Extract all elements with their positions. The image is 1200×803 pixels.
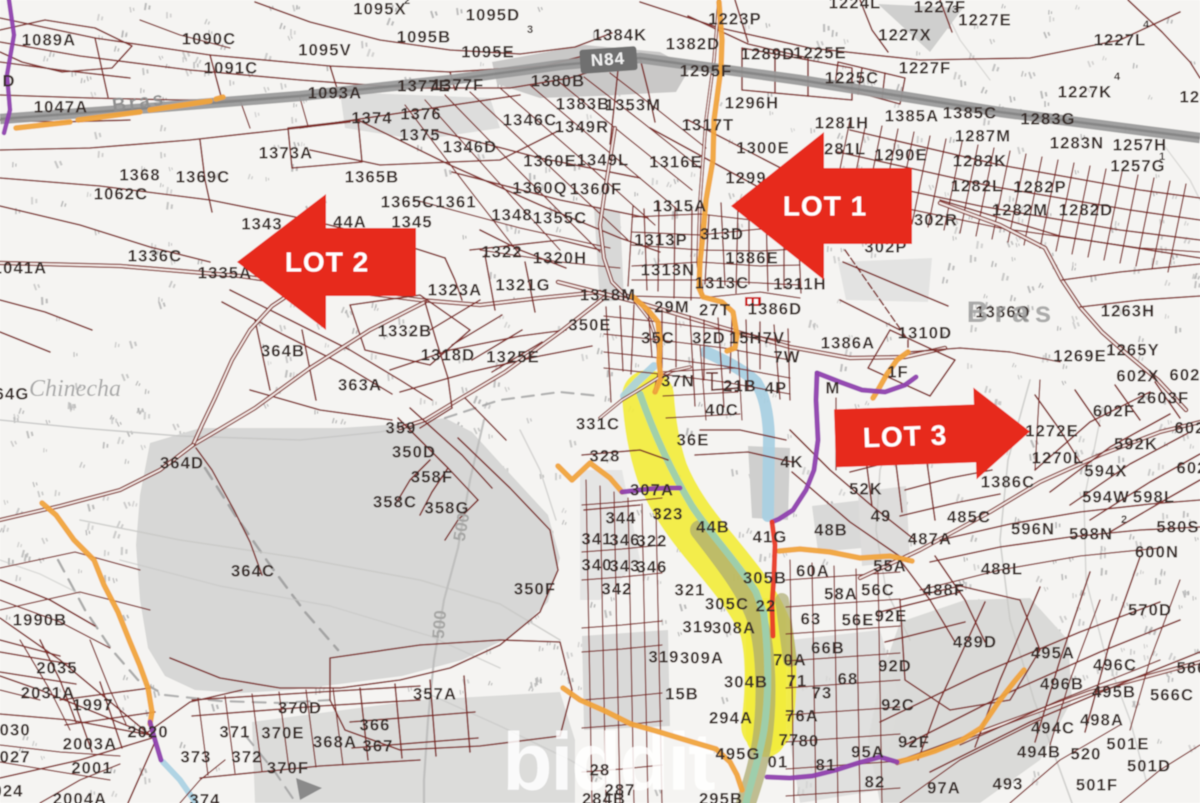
svg-text:364C: 364C [231,562,275,581]
svg-text:1318M: 1318M [580,286,636,305]
svg-text:97A: 97A [927,779,961,798]
svg-text:364D: 364D [160,454,204,473]
svg-text:1: 1 [1159,151,1165,163]
svg-text:LOT 3: LOT 3 [862,419,947,453]
svg-text:60A: 60A [796,562,830,581]
svg-text:40C: 40C [705,401,739,420]
svg-text:1320H: 1320H [533,249,587,268]
svg-text:52K: 52K [849,480,883,499]
svg-text:1318D: 1318D [421,346,475,365]
svg-text:64G: 64G [0,385,29,404]
svg-text:1361: 1361 [435,193,476,212]
svg-text:1265Y: 1265Y [1106,341,1159,360]
svg-text:1225E: 1225E [793,44,846,63]
svg-text:1386E: 1386E [725,249,778,268]
svg-text:71: 71 [787,672,808,691]
svg-text:366: 366 [360,716,391,735]
svg-text:323: 323 [653,505,684,524]
svg-text:357A: 357A [413,685,457,704]
svg-text:370E: 370E [261,724,304,743]
svg-text:1062C: 1062C [94,185,148,204]
svg-text:1990B: 1990B [13,611,67,630]
svg-text:1270L: 1270L [1032,449,1085,468]
svg-text:1386C: 1386C [981,473,1035,492]
svg-text:1384K: 1384K [593,26,647,45]
svg-text:592K: 592K [1114,435,1158,454]
svg-text:1355C: 1355C [533,209,587,228]
svg-text:2: 2 [404,0,410,7]
svg-text:41G: 41G [753,528,788,547]
svg-text:341: 341 [582,530,613,549]
svg-text:1386A: 1386A [821,334,875,353]
svg-text:1336C: 1336C [128,247,182,266]
svg-text:1227F: 1227F [899,59,952,78]
svg-text:2003A: 2003A [63,735,117,754]
svg-text:371: 371 [220,723,251,742]
svg-text:368A: 368A [313,733,357,752]
svg-text:496B: 496B [1040,675,1084,694]
svg-text:602: 602 [1175,419,1200,438]
svg-text:1095D: 1095D [466,6,520,25]
svg-text:1349L: 1349L [577,151,630,170]
svg-text:2001: 2001 [71,759,112,778]
svg-text:44B: 44B [696,518,730,537]
svg-text:1300E: 1300E [736,139,789,158]
svg-text:1282D: 1282D [1059,201,1113,220]
svg-text:4: 4 [1143,19,1150,31]
svg-text:1095E: 1095E [461,43,514,62]
svg-text:1332B: 1332B [378,322,432,341]
svg-text:3: 3 [527,24,533,36]
svg-text:322: 322 [637,532,668,551]
svg-text:1227F: 1227F [914,0,967,17]
svg-text:68: 68 [838,670,859,689]
svg-text:1310D: 1310D [898,324,952,343]
svg-text:370D: 370D [278,699,322,718]
svg-text:1F: 1F [887,363,909,382]
svg-text:501E: 501E [1106,735,1149,754]
svg-text:82: 82 [865,773,886,792]
svg-text:1090C: 1090C [182,30,236,49]
svg-text:1289D: 1289D [741,45,795,64]
svg-text:340: 340 [582,556,613,575]
svg-text:1385C: 1385C [943,104,997,123]
svg-text:346: 346 [637,558,668,577]
svg-text:1360F: 1360F [570,180,623,199]
svg-text:32D: 32D [692,329,726,348]
svg-text:3: 3 [952,4,958,16]
svg-text:28: 28 [590,761,611,780]
svg-text:1282K: 1282K [953,152,1007,171]
svg-text:494C: 494C [1031,719,1075,738]
svg-text:92C: 92C [881,696,915,715]
svg-text:570D: 570D [1128,601,1172,620]
svg-text:Chinecha: Chinecha [29,376,121,402]
svg-text:D: D [2,72,15,91]
svg-text:363A: 363A [338,376,382,395]
svg-text:370F: 370F [267,759,309,778]
svg-text:500: 500 [429,610,450,640]
svg-text:76A: 76A [785,707,819,726]
svg-text:27T: 27T [699,301,731,320]
svg-text:344: 344 [606,509,637,528]
svg-text:2027: 2027 [0,748,31,767]
svg-text:22: 22 [756,597,777,616]
svg-text:1282P: 1282P [1013,178,1066,197]
svg-text:372: 372 [232,748,263,767]
svg-text:70A: 70A [773,651,807,670]
svg-text:350D: 350D [392,443,436,462]
svg-text:1369C: 1369C [176,168,230,187]
svg-text:LOT 2: LOT 2 [285,247,369,278]
svg-text:1282M: 1282M [992,201,1048,220]
svg-text:1382D: 1382D [666,35,720,54]
svg-text:1095X: 1095X [353,0,406,19]
svg-text:319: 319 [649,648,680,667]
svg-text:73: 73 [812,684,833,703]
svg-text:1282L: 1282L [951,177,1004,196]
svg-text:1095V: 1095V [298,41,351,60]
svg-text:580S: 580S [1156,518,1199,537]
svg-text:1313P: 1313P [634,231,687,250]
svg-text:1313N: 1313N [641,261,695,280]
svg-text:1343: 1343 [241,215,282,234]
svg-text:1091C: 1091C [204,59,258,78]
svg-text:309A: 309A [680,649,724,668]
svg-text:331C: 331C [576,415,620,434]
svg-text:1281H: 1281H [815,114,869,133]
svg-text:1227X: 1227X [878,26,931,45]
svg-text:1317T: 1317T [682,116,735,135]
svg-text:1287M: 1287M [955,127,1011,146]
svg-text:01: 01 [768,753,789,772]
svg-text:1283N: 1283N [1050,134,1104,153]
svg-text:488F: 488F [923,581,965,600]
svg-text:2035: 2035 [36,659,77,678]
svg-text:284B: 284B [582,790,626,803]
svg-text:124: 124 [1180,88,1200,107]
svg-text:602: 602 [1170,366,1200,385]
svg-text:596N: 596N [1011,520,1055,539]
svg-text:1346D: 1346D [443,138,497,157]
svg-text:367: 367 [363,737,394,756]
svg-text:374: 374 [190,791,221,803]
svg-text:1997: 1997 [72,696,113,715]
svg-text:501F: 501F [1076,776,1118,795]
svg-text:77: 77 [779,731,800,750]
svg-text:29M: 29M [654,298,690,317]
svg-text:49: 49 [871,507,892,526]
svg-text:313D: 313D [700,225,744,244]
svg-text:494B: 494B [1017,743,1061,762]
svg-text:489D: 489D [953,633,997,652]
svg-text:1376: 1376 [400,105,441,124]
svg-text:63: 63 [801,610,822,629]
svg-text:N84: N84 [590,49,625,70]
svg-text:4P: 4P [765,379,788,398]
svg-text:15B: 15B [665,685,699,704]
svg-text:48B: 48B [814,521,848,540]
svg-text:495A: 495A [1031,644,1075,663]
svg-text:1348: 1348 [491,206,532,225]
svg-text:1360E: 1360E [523,152,576,171]
svg-text:95A: 95A [851,743,885,762]
svg-text:495B: 495B [1092,683,1136,702]
svg-text:1283G: 1283G [1020,110,1075,129]
svg-text:1377F: 1377F [432,76,485,95]
svg-text:1295F: 1295F [680,62,733,81]
svg-text:1263H: 1263H [1101,302,1155,321]
svg-text:1225C: 1225C [825,69,879,88]
svg-text:321: 321 [675,581,706,600]
svg-text:342: 342 [602,580,633,599]
svg-text:302R: 302R [914,211,958,230]
svg-text:496C: 496C [1093,656,1137,675]
svg-text:602X: 602X [1116,367,1159,386]
svg-text:1315A: 1315A [653,197,707,216]
svg-text:81: 81 [816,756,837,775]
svg-text:358C: 358C [373,493,417,512]
svg-text:Bras: Bras [967,296,1058,329]
svg-text:1373A: 1373A [259,144,313,163]
svg-text:1386D: 1386D [748,300,802,319]
svg-text:1311H: 1311H [773,275,826,294]
svg-text:1224L: 1224L [829,0,882,13]
svg-text:1383B: 1383B [556,95,610,114]
svg-text:294A: 294A [709,709,753,728]
svg-text:1272E: 1272E [1025,422,1078,441]
svg-text:024: 024 [0,782,24,801]
svg-text:358F: 358F [411,468,453,487]
svg-text:1325E: 1325E [486,348,539,367]
svg-text:1269E: 1269E [1053,347,1106,366]
svg-text:1365B: 1365B [345,168,399,187]
svg-text:92F: 92F [898,733,930,752]
svg-text:598L: 598L [1133,488,1175,507]
svg-text:488L: 488L [981,560,1023,579]
svg-text:58A: 58A [824,585,858,604]
svg-text:594W: 594W [1082,488,1130,507]
svg-text:1385A: 1385A [885,107,939,126]
svg-text:1089A: 1089A [22,31,76,50]
svg-text:295B: 295B [699,790,743,803]
svg-text:373: 373 [181,748,212,767]
svg-text:566: 566 [1177,659,1200,678]
svg-text:1047A: 1047A [34,98,88,117]
svg-text:92E: 92E [875,607,908,626]
svg-text:56E: 56E [842,611,875,630]
svg-text:M: M [826,379,841,398]
svg-text:37N: 37N [661,372,695,391]
svg-text:2020: 2020 [127,723,168,742]
svg-text:55A: 55A [873,557,907,576]
svg-text:92D: 92D [878,657,912,676]
svg-text:305B: 305B [743,569,787,588]
svg-text:1374: 1374 [351,109,392,128]
svg-text:520: 520 [1071,745,1102,764]
svg-text:350E: 350E [568,316,611,335]
svg-text:498A: 498A [1080,711,1124,730]
svg-text:487A: 487A [908,530,952,549]
svg-text:1321G: 1321G [495,276,550,295]
svg-text:304B: 304B [724,673,768,692]
svg-text:566C: 566C [1150,686,1194,705]
svg-text:1227L: 1227L [1094,31,1147,50]
svg-text:359: 359 [386,419,417,438]
svg-text:1041A: 1041A [0,259,47,278]
svg-text:4: 4 [1114,71,1121,83]
svg-text:1290E: 1290E [874,146,927,165]
svg-text:7W: 7W [773,348,800,367]
svg-text:2603F: 2603F [1137,389,1190,408]
svg-text:1349R: 1349R [555,118,609,137]
svg-text:1380B: 1380B [531,72,585,91]
svg-text:36E: 36E [677,431,710,450]
svg-text:1365C: 1365C [381,193,435,212]
svg-text:1368: 1368 [119,166,160,185]
svg-text:1316E: 1316E [649,153,702,172]
svg-text:364B: 364B [261,342,305,361]
svg-text:594X: 594X [1084,462,1127,481]
svg-text:2: 2 [1121,514,1127,526]
svg-text:495G: 495G [716,745,761,764]
svg-text:35C: 35C [641,329,675,348]
svg-text:1227K: 1227K [1058,83,1112,102]
svg-text:15H7V: 15H7V [729,329,785,348]
svg-text:1323A: 1323A [428,281,482,300]
svg-text:2030: 2030 [0,721,31,740]
svg-text:66B: 66B [811,639,845,658]
svg-text:493: 493 [993,775,1024,794]
svg-text:319: 319 [683,618,714,637]
svg-text:4K: 4K [780,453,803,472]
svg-text:600N: 600N [1135,543,1179,562]
svg-text:21B: 21B [723,377,757,396]
svg-text:598N: 598N [1069,525,1113,544]
svg-text:602F: 602F [1093,402,1135,421]
svg-text:80: 80 [799,732,820,751]
svg-text:1095B: 1095B [397,28,451,47]
svg-text:485C: 485C [947,508,991,527]
svg-text:2031A: 2031A [21,684,75,703]
svg-text:350F: 350F [514,580,556,599]
svg-text:1360Q: 1360Q [512,179,567,198]
svg-text:1223P: 1223P [708,10,761,29]
svg-text:1346C: 1346C [503,111,557,130]
svg-text:56C: 56C [861,581,895,600]
svg-text:1093A: 1093A [308,84,362,103]
svg-text:501D: 501D [1127,757,1171,776]
svg-text:1375: 1375 [399,126,440,145]
svg-text:602: 602 [1177,459,1200,478]
svg-text:307A: 307A [630,481,674,500]
svg-text:1353M: 1353M [605,96,661,115]
svg-text:1313C: 1313C [695,274,749,293]
svg-text:328: 328 [590,447,621,466]
svg-text:2004A: 2004A [53,790,107,803]
svg-text:1296H: 1296H [725,94,779,113]
svg-text:1257G: 1257G [1110,157,1165,176]
svg-text:308A: 308A [712,619,756,638]
svg-text:1322: 1322 [481,243,522,262]
svg-text:305C: 305C [705,595,749,614]
svg-text:LOT 1: LOT 1 [783,191,867,222]
